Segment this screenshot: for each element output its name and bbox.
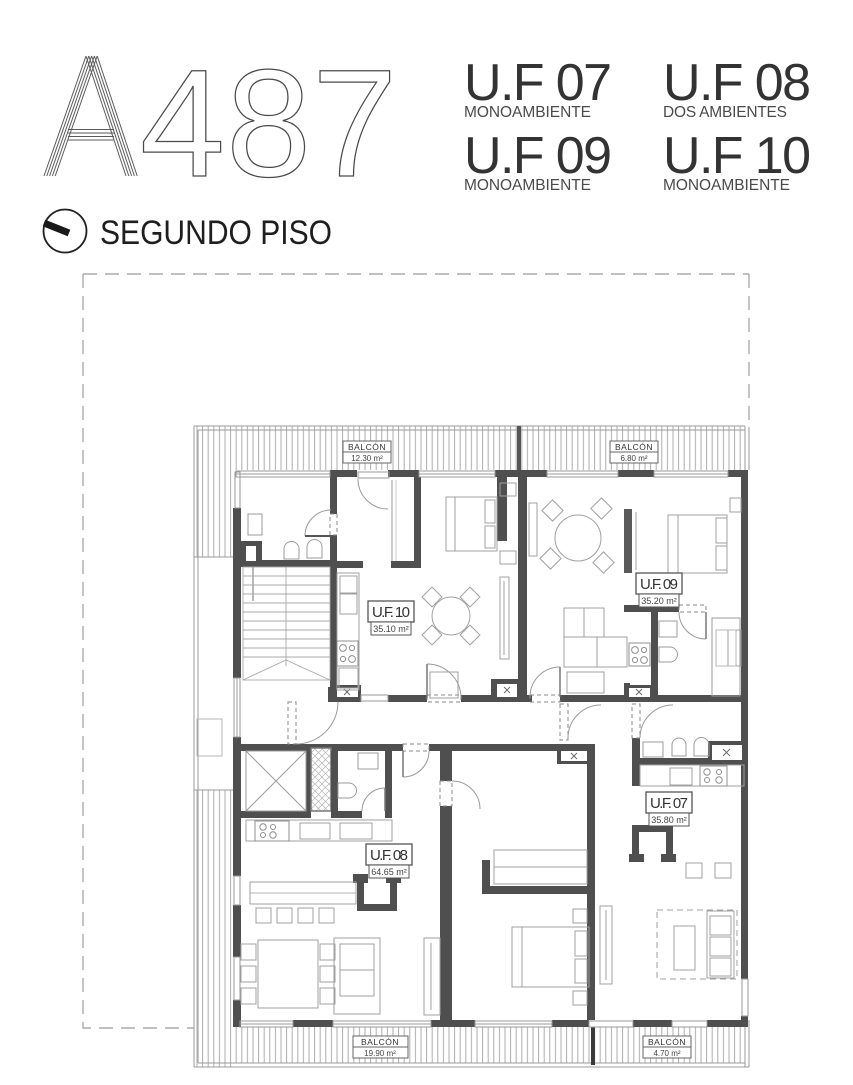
svg-text:35.10 m²: 35.10 m² (373, 624, 409, 634)
svg-text:BALCÓN: BALCÓN (615, 442, 653, 452)
svg-text:35.80 m²: 35.80 m² (651, 815, 687, 825)
svg-text:BALCÓN: BALCÓN (648, 1037, 686, 1047)
svg-text:BALCÓN: BALCÓN (361, 1037, 399, 1047)
svg-text:19.90 m²: 19.90 m² (364, 1049, 396, 1058)
svg-text:487: 487 (140, 38, 398, 209)
svg-text:DOS AMBIENTES: DOS AMBIENTES (663, 104, 787, 121)
svg-text:SEGUNDO PISO: SEGUNDO PISO (100, 214, 332, 252)
svg-text:U.F. 08: U.F. 08 (370, 847, 408, 864)
svg-text:MONOAMBIENTE: MONOAMBIENTE (464, 177, 591, 194)
svg-text:MONOAMBIENTE: MONOAMBIENTE (663, 177, 790, 194)
svg-text:4.70 m²: 4.70 m² (653, 1049, 680, 1058)
svg-text:U.F. 07: U.F. 07 (650, 795, 688, 812)
svg-text:64.65 m²: 64.65 m² (371, 867, 407, 877)
svg-text:U.F. 09: U.F. 09 (640, 576, 678, 593)
svg-text:U.F. 10: U.F. 10 (372, 604, 410, 621)
svg-text:MONOAMBIENTE: MONOAMBIENTE (464, 104, 591, 121)
svg-text:BALCÓN: BALCÓN (348, 442, 386, 452)
svg-text:35.20 m²: 35.20 m² (641, 596, 677, 606)
svg-text:6.80 m²: 6.80 m² (620, 454, 647, 463)
svg-text:12.30 m²: 12.30 m² (351, 454, 383, 463)
